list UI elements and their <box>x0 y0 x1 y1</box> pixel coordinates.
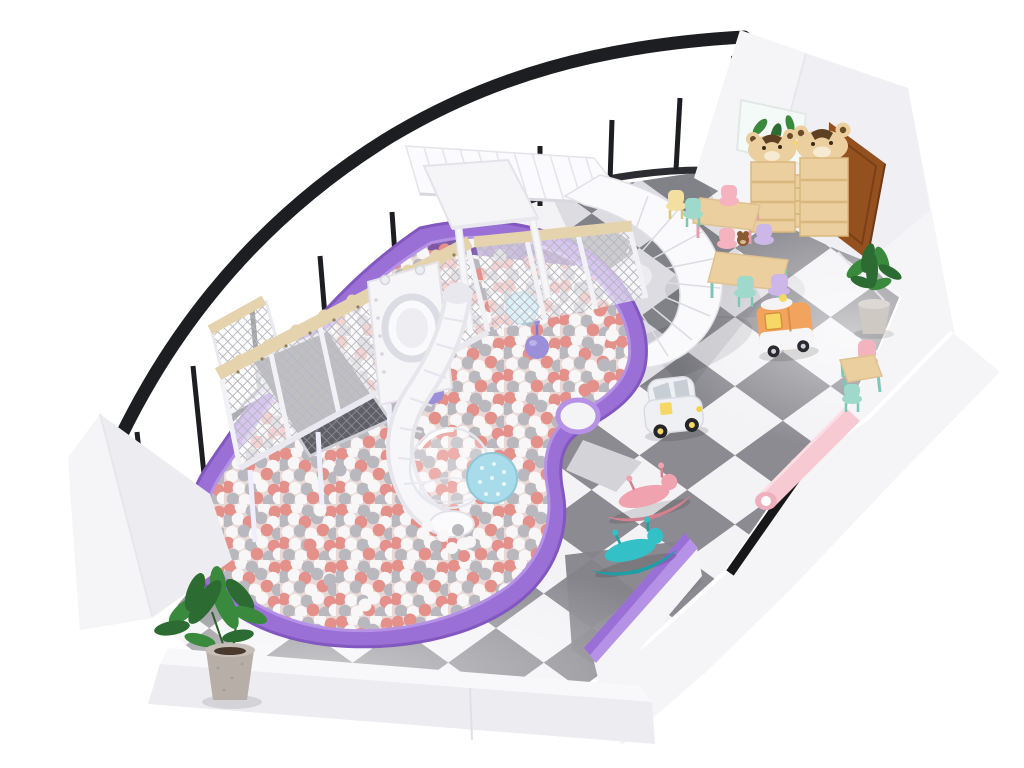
playground-scene: 3D render of an indoor kids playground w… <box>0 0 1024 768</box>
playground-render: 3D render of an indoor kids playground w… <box>0 0 1024 768</box>
pit-step <box>558 400 598 432</box>
kids-chair-pink-2 <box>717 228 737 249</box>
slide-exit <box>430 511 474 537</box>
bear-shelves: Bear-shaped wooden toy shelves <box>746 123 851 237</box>
kids-chair-lavender-1 <box>754 224 774 245</box>
kids-chair-pink-1 <box>719 185 739 206</box>
bear-shelf-2 <box>794 123 851 237</box>
blue-spiky-ball-large <box>467 453 517 503</box>
